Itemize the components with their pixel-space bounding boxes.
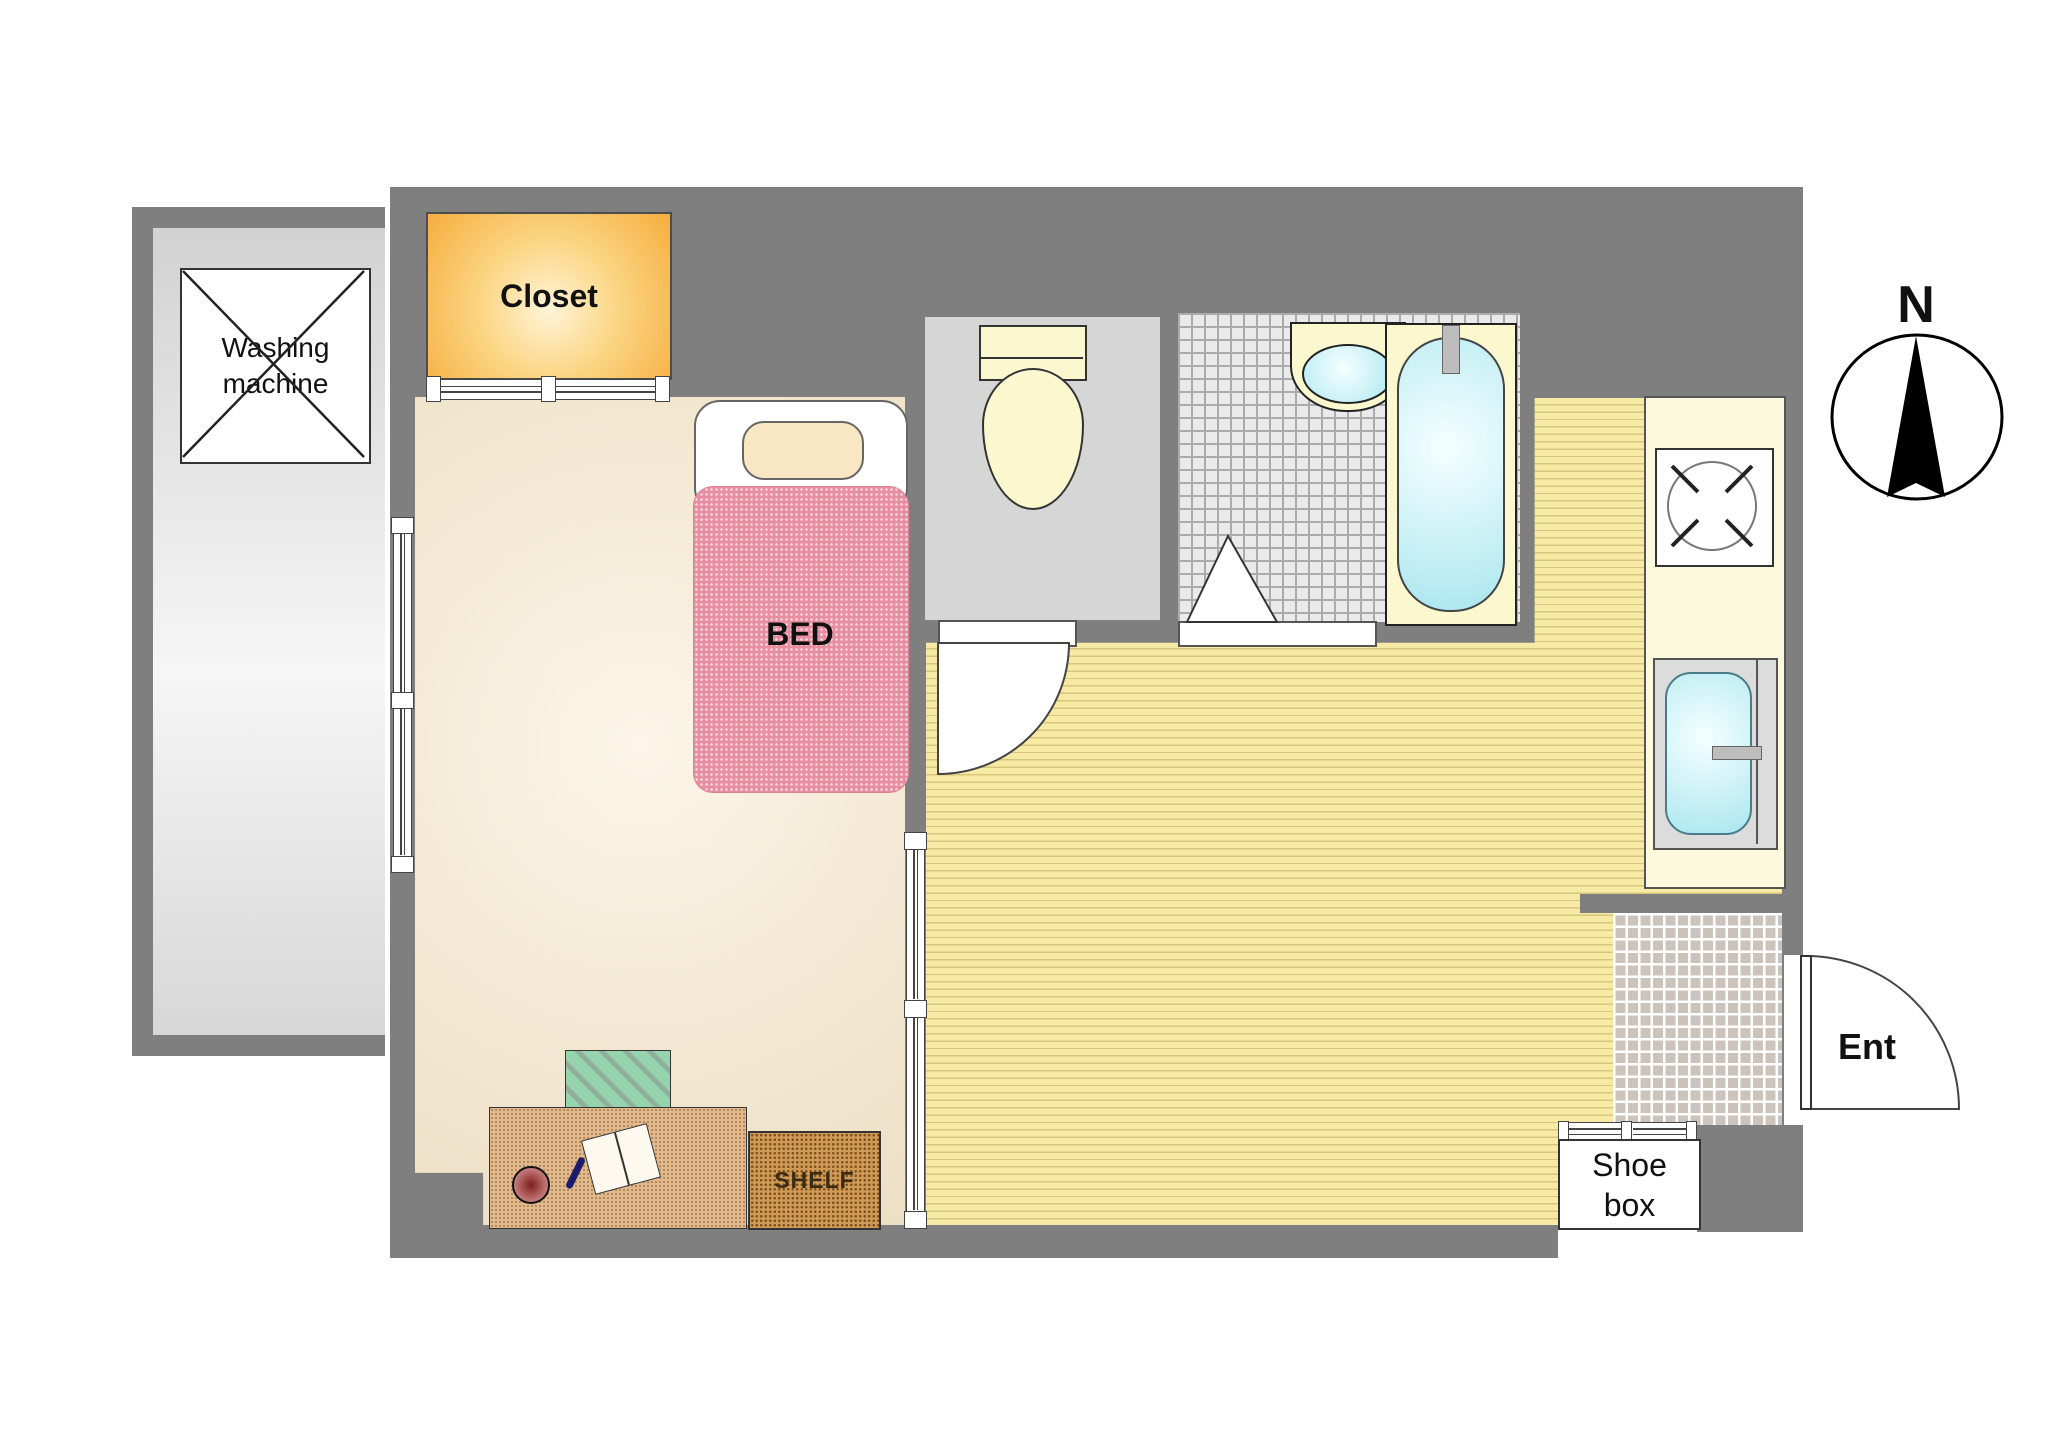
bed-label: BED xyxy=(693,616,907,653)
shoe-box: Shoe box xyxy=(1558,1139,1701,1230)
bedroom-balcony-window xyxy=(391,517,414,872)
toilet-door-threshold xyxy=(938,620,1077,647)
building-wall-bottom xyxy=(390,1225,1558,1258)
balcony-wall-left xyxy=(132,207,153,1056)
entrance-step-wall xyxy=(1580,894,1782,913)
closet-label: Closet xyxy=(500,278,598,315)
compass-needle xyxy=(1887,336,1945,497)
closet: Closet xyxy=(426,212,672,380)
balcony-wall-top xyxy=(132,207,385,228)
cup xyxy=(512,1166,550,1204)
shelf-label: SHELF xyxy=(774,1167,854,1194)
shoe-box-sliding-door xyxy=(1558,1122,1695,1139)
compass-north-label: N xyxy=(1876,275,1956,335)
desk-chair xyxy=(565,1050,671,1109)
washing-machine-label-line2: machine xyxy=(223,366,329,402)
shoe-box-label-line1: Shoe xyxy=(1592,1145,1667,1185)
bathtub-faucet xyxy=(1442,325,1460,374)
toilet-tank-divider xyxy=(979,357,1083,359)
washing-machine-label-line1: Washing xyxy=(222,330,330,366)
kitchen-faucet xyxy=(1712,746,1762,760)
entrance-label: Ent xyxy=(1807,1026,1927,1068)
bed-pillow xyxy=(742,421,864,480)
bedroom-living-window xyxy=(904,832,927,1227)
building-wall-entrance-corner xyxy=(1697,1125,1803,1232)
entrance-tile-floor xyxy=(1613,913,1782,1125)
bathtub-basin xyxy=(1397,337,1505,612)
floor-plan: Closet BED xyxy=(0,0,2048,1448)
balcony-wall-bottom xyxy=(132,1035,385,1056)
shelf: SHELF xyxy=(748,1131,881,1230)
compass-circle xyxy=(1832,335,2002,499)
washing-machine: Washing machine xyxy=(180,268,371,464)
bath-vanity-basin xyxy=(1302,344,1394,404)
closet-sliding-door xyxy=(426,378,668,399)
entry-door-opening xyxy=(1784,955,1804,1125)
stove xyxy=(1655,448,1774,567)
bath-door-threshold xyxy=(1178,621,1377,647)
shoe-box-label-line2: box xyxy=(1604,1185,1656,1225)
